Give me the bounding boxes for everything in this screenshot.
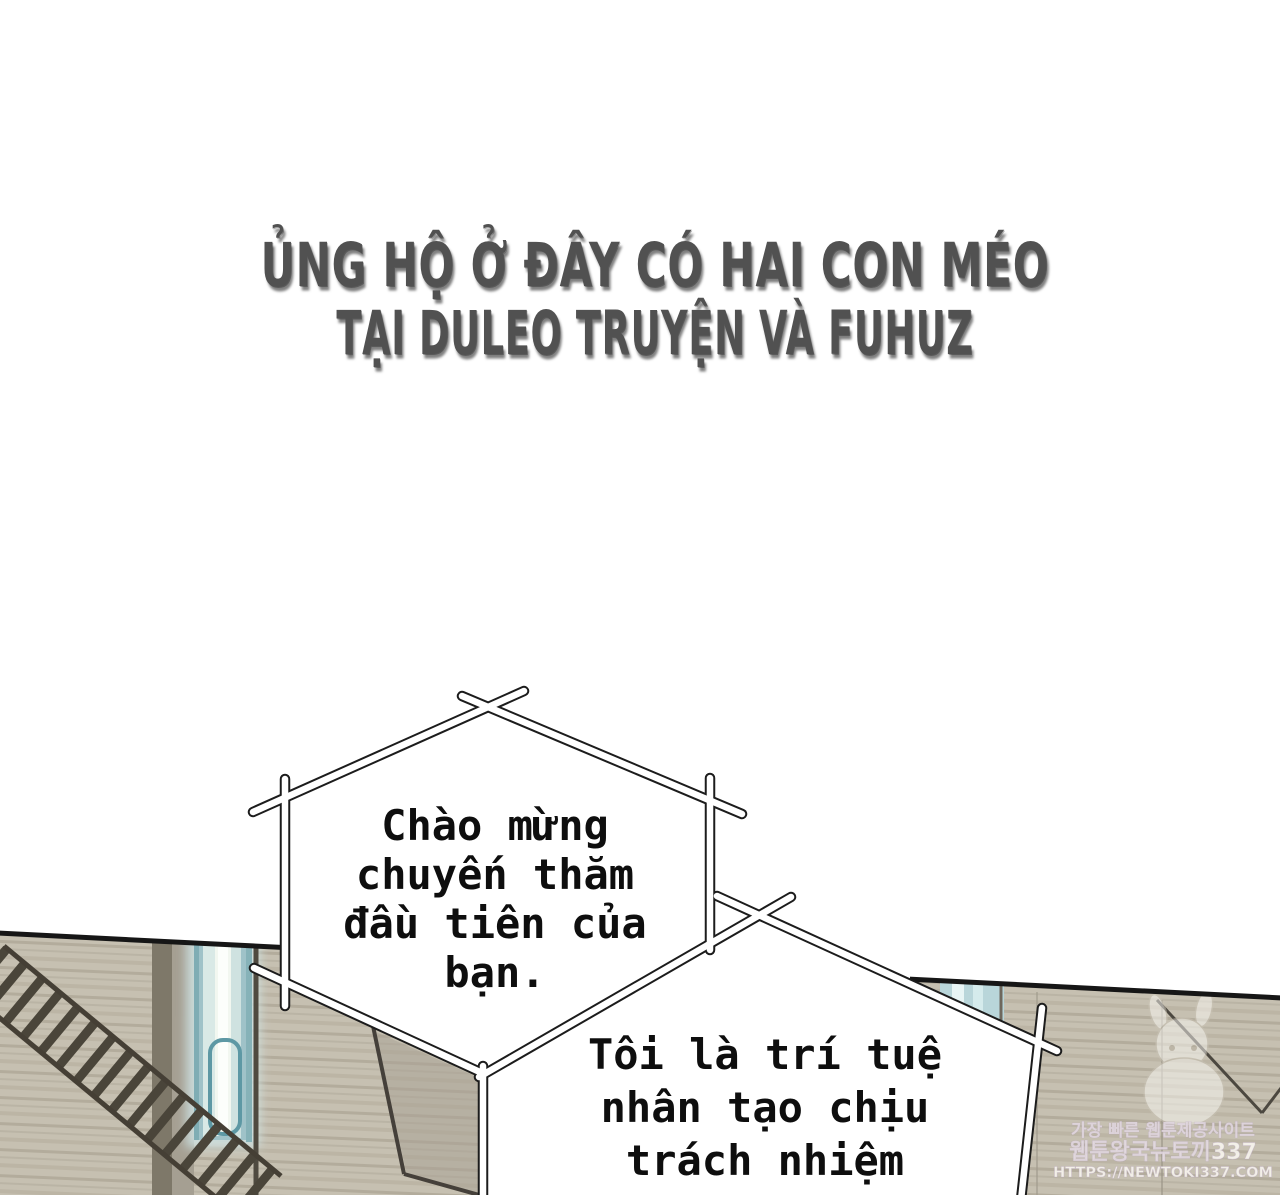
watermark-url: HTTPS://NEWTOKI337.COM [1053,1165,1273,1181]
bubble-1-line: Chào mừng [263,801,727,850]
scene-artwork: 가장 빠른 웹툰제공사이트 웹툰왕국뉴토끼337 HTTPS://NEWTOKI… [0,0,1280,1195]
watermark-site-name: 웹툰왕국뉴토끼337 [1069,1140,1257,1165]
credit-banner-line-1: ỦNG HỘ Ở ĐÂY CÓ HAI CON MÉO [156,231,1154,300]
bubble-1-line: chuyến thăm [263,850,727,899]
bubble-1-line: bạn. [263,948,727,997]
bubble-2-line: trách nhiệm [533,1134,997,1187]
bubble-1-line: đầu tiên của [263,899,727,948]
watermark-tagline: 가장 빠른 웹툰제공사이트 [1071,1121,1255,1141]
speech-bubble-1-text: Chào mừng chuyến thăm đầu tiên của bạn. [263,801,727,997]
bubble-2-line: Tôi là trí tuệ [533,1028,997,1081]
comic-page: 가장 빠른 웹툰제공사이트 웹툰왕국뉴토끼337 HTTPS://NEWTOKI… [0,0,1280,1195]
bubble-2-line: nhân tạo chịu [533,1081,997,1134]
speech-bubble-2-text: Tôi là trí tuệ nhân tạo chịu trách nhiệm [533,1028,997,1187]
credit-banner-line-2: TẠI DULEO TRUYỆN VÀ FUHUZ [220,299,1090,368]
